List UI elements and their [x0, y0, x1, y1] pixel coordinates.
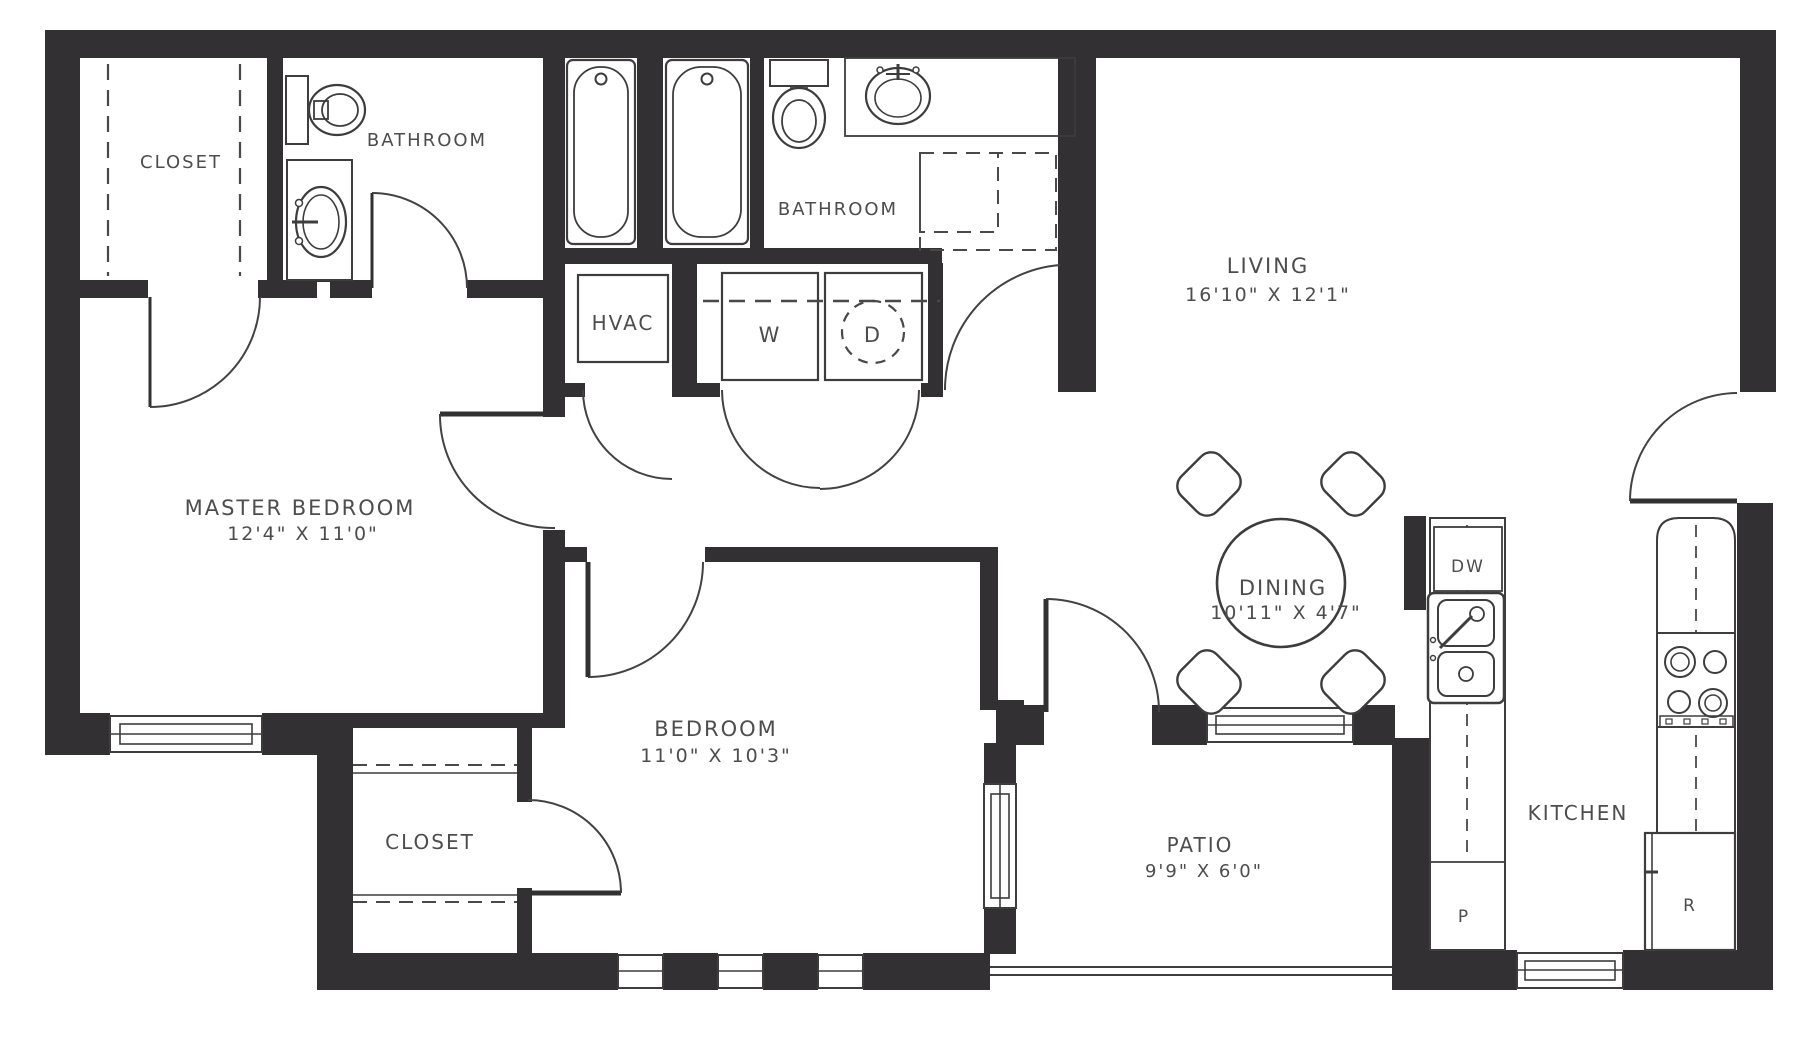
master-bedroom-door — [440, 414, 555, 528]
bedroom-label: BEDROOM — [654, 717, 778, 741]
wall-exterior-right-living — [1740, 30, 1776, 392]
wall-master-closet-right — [267, 58, 283, 282]
wall-patio-left-lower — [984, 908, 1016, 954]
washer-label: W — [759, 323, 782, 347]
master-bedroom-label: MASTER BEDROOM — [185, 496, 416, 520]
toilet-icon — [770, 60, 828, 148]
pantry-label: P — [1458, 907, 1470, 927]
dining-label: DINING — [1239, 576, 1327, 600]
wall-closet-step-left — [317, 713, 353, 990]
hvac-label: HVAC — [592, 311, 655, 335]
window-dining — [1207, 708, 1353, 742]
master-bathroom-door — [372, 193, 467, 288]
window-bedroom-2 — [718, 955, 763, 988]
master-closet-door — [150, 297, 260, 407]
kitchen-sink-icon — [1428, 593, 1504, 703]
bedroom-closet-label: CLOSET — [385, 830, 475, 854]
range-cooktop-icon — [1657, 633, 1735, 727]
bedroom-door — [588, 562, 703, 677]
wall-patio-left-upper — [984, 743, 1016, 784]
living-dimensions: 16'10" X 12'1" — [1185, 284, 1351, 306]
main-bathroom-label: BATHROOM — [778, 199, 898, 220]
master-bedroom-dimensions: 12'4" X 11'0" — [227, 523, 379, 545]
wall-hall-bottom-b — [705, 547, 998, 562]
bathtub-icon — [567, 60, 635, 244]
wall-exterior-top — [45, 30, 1775, 58]
dining-dimensions: 10'11" X 4'7" — [1210, 602, 1362, 624]
wall-exterior-left — [45, 30, 80, 755]
dining-chair-icon — [1172, 447, 1247, 522]
hvac-closet-door — [583, 390, 672, 479]
wall-kitchen-left — [1392, 738, 1430, 990]
wall-bedroom-dining-divider — [980, 560, 998, 710]
patio-dimensions: 9'9" X 6'0" — [1145, 861, 1263, 882]
wall-bottom-seg2 — [663, 953, 718, 990]
wall-master-bottom-left — [45, 713, 110, 755]
bathtub-icon — [666, 60, 748, 244]
wall-master-bath-bottom-a — [330, 280, 372, 298]
window-bedroom-1 — [618, 955, 663, 988]
master-bathroom-label: BATHROOM — [367, 130, 487, 151]
shower-dashed-outline — [920, 153, 1056, 250]
wall-bedroom-closet-right-a — [517, 728, 532, 802]
wall-bedroom-closet-top — [350, 713, 565, 728]
refrigerator-label: R — [1683, 896, 1697, 916]
wall-central-vertical-upper — [543, 58, 565, 417]
floor-plan-drawing: CLOSET BATHROOM BATHROOM HVAC W D LIVING… — [0, 0, 1814, 1047]
vanity-sink-icon — [845, 58, 1075, 136]
wall-tub-divider-1 — [637, 58, 663, 250]
living-label: LIVING — [1227, 254, 1309, 278]
wall-master-closet-bottom-b — [258, 280, 317, 298]
main-bathroom-door — [945, 265, 1062, 390]
floor-plan-page: CLOSET BATHROOM BATHROOM HVAC W D LIVING… — [0, 0, 1814, 1047]
wall-tub-divider-2 — [750, 58, 764, 250]
patio-open-edge — [990, 967, 1392, 975]
wall-exterior-right-kitchen — [1737, 503, 1773, 990]
wall-kitchen-stub — [1404, 516, 1426, 610]
wall-bottom-seg3 — [763, 953, 818, 990]
window-patio-side — [984, 784, 1016, 908]
wall-hall-bottom-a — [565, 547, 587, 562]
window-kitchen — [1517, 953, 1623, 988]
wall-bottom-seg4 — [863, 953, 990, 990]
refrigerator-icon — [1645, 833, 1735, 950]
wall-tub-area-bottom — [543, 248, 942, 264]
window-master-bedroom — [110, 716, 262, 752]
master-closet-label: CLOSET — [140, 152, 222, 173]
kitchen-label: KITCHEN — [1528, 801, 1629, 825]
bedroom-closet-door — [528, 800, 621, 893]
wall-master-closet-bottom-a — [80, 280, 148, 298]
entry-door — [1630, 393, 1737, 501]
wall-master-bath-bottom-b — [467, 280, 543, 298]
toilet-icon — [286, 76, 365, 144]
laundry-double-doors — [722, 390, 919, 489]
vanity-sink-icon — [287, 160, 352, 280]
kitchen-counter-right — [1645, 518, 1735, 950]
wall-central-vertical-lower — [543, 530, 565, 728]
wall-bottom-seg1 — [353, 953, 618, 990]
wall-hvac-laundry-divider — [672, 263, 697, 397]
wall-laundry-right — [928, 263, 943, 389]
wall-patio-corner — [996, 700, 1024, 745]
patio-door — [1046, 599, 1159, 712]
dining-chair-icon — [1316, 447, 1391, 522]
wall-laundry-bottom-a — [697, 383, 720, 397]
patio-label: PATIO — [1167, 833, 1234, 857]
bedroom-dimensions: 11'0" X 10'3" — [640, 745, 792, 767]
dryer-label: D — [864, 323, 882, 347]
dishwasher-label: DW — [1451, 557, 1485, 577]
wall-kitchen-bottom-right — [1623, 950, 1773, 990]
window-bedroom-3 — [818, 955, 863, 988]
wall-dining-bottom-2 — [1152, 705, 1207, 745]
kitchen-counter-left — [1428, 518, 1505, 950]
wall-bedroom-closet-right-b — [517, 888, 532, 953]
